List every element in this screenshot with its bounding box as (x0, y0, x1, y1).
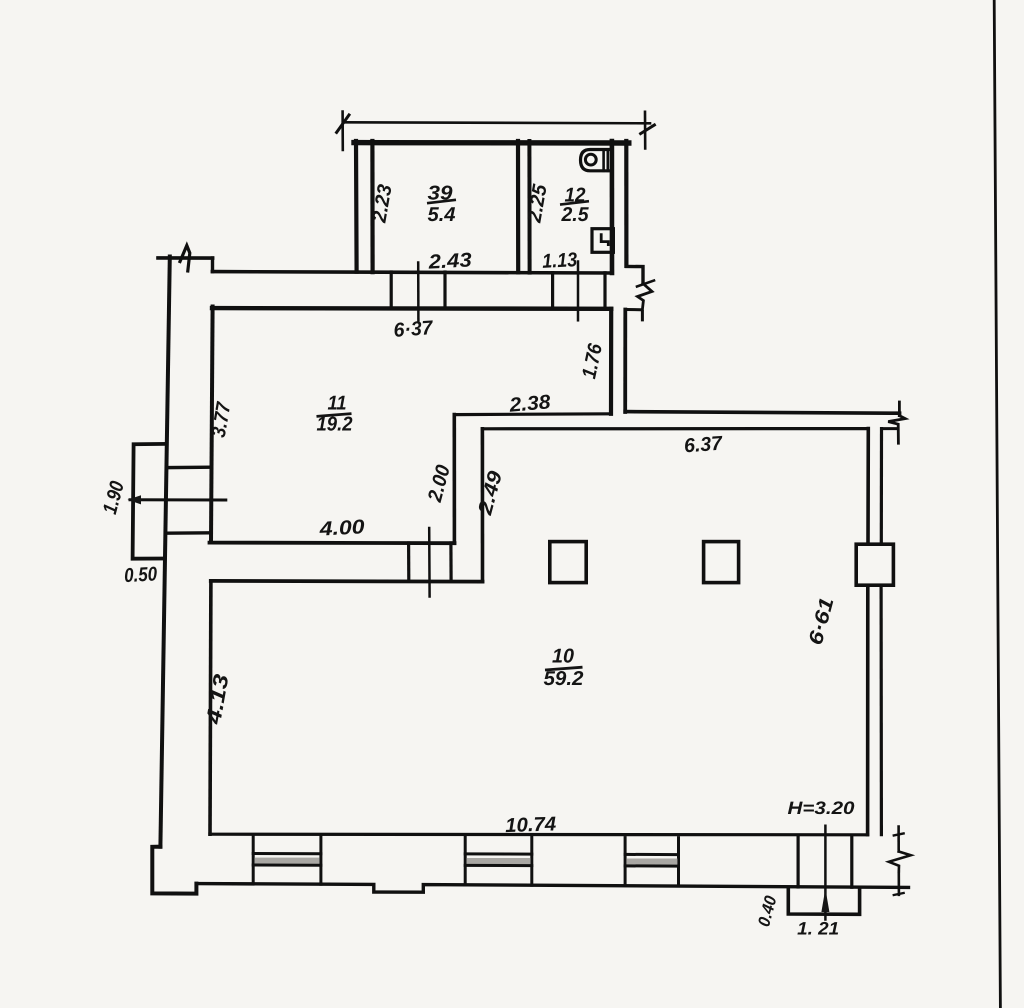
svg-text:H=3.20: H=3.20 (788, 798, 855, 818)
svg-text:0.50: 0.50 (124, 563, 158, 587)
svg-text:10: 10 (552, 646, 574, 668)
svg-text:10.74: 10.74 (505, 813, 557, 837)
svg-text:2.38: 2.38 (508, 391, 553, 417)
svg-text:59.2: 59.2 (544, 668, 584, 690)
svg-text:11: 11 (328, 393, 347, 415)
svg-text:1. 21: 1. 21 (797, 919, 839, 939)
svg-text:5.4: 5.4 (428, 204, 456, 226)
svg-text:19.2: 19.2 (317, 414, 353, 436)
svg-text:1.13: 1.13 (542, 249, 578, 273)
svg-text:2.5: 2.5 (561, 204, 590, 226)
svg-text:2.43: 2.43 (427, 249, 472, 273)
svg-text:6·37: 6·37 (393, 317, 434, 342)
svg-text:6.37: 6.37 (683, 433, 723, 458)
svg-text:4.00: 4.00 (318, 516, 365, 540)
